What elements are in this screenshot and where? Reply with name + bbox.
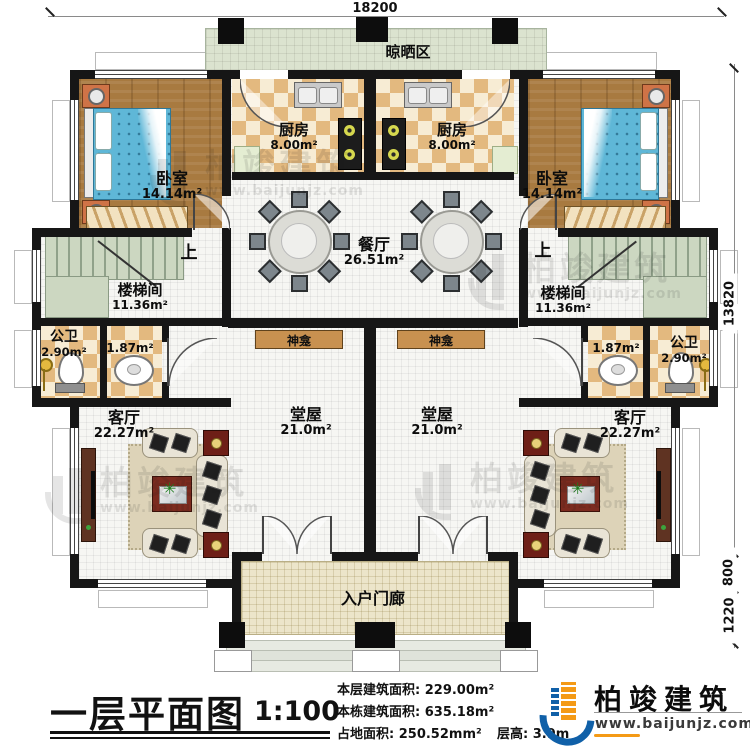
chair: [485, 233, 502, 250]
room-label-stair-left: 楼梯间11.36m²: [112, 282, 168, 312]
tv-cabinet: [656, 448, 671, 542]
stair-treads-left: [45, 233, 184, 280]
page-title: 一层平面图: [50, 684, 245, 738]
room-label-kitchen-left: 厨房8.00m²: [270, 122, 317, 152]
window: [98, 579, 206, 588]
table-top: [433, 223, 469, 259]
stair-landing-left: [45, 276, 109, 318]
room-label-living-right: 客厅22.27m²: [600, 409, 660, 441]
column-base: [352, 650, 400, 672]
door-opening: [462, 70, 510, 79]
sofa: [524, 455, 556, 537]
dining-table: [420, 210, 484, 274]
window-sill: [682, 100, 700, 202]
burner-icon: [388, 149, 399, 160]
mop-handle: [704, 369, 706, 391]
wall: [232, 552, 262, 561]
lamp-icon: [648, 88, 665, 105]
logo-accent-bar: [594, 734, 640, 737]
room-label-porch: 入户门廊: [341, 590, 405, 608]
dimension-right-upper: 13820: [723, 274, 738, 334]
porch-column: [219, 622, 245, 648]
bed-blanket: [584, 109, 612, 197]
bath-right-small-area: 1.87m²: [592, 342, 639, 355]
wall: [519, 318, 718, 326]
wall: [519, 398, 671, 407]
loveseat: [142, 528, 198, 558]
room-label-dining: 餐厅26.51m²: [344, 236, 404, 268]
logo-divider: [594, 712, 742, 713]
room-label-hall-left: 堂屋21.0m²: [280, 406, 331, 438]
cushion: [202, 509, 222, 529]
tv-cabinet: [81, 448, 96, 542]
column: [218, 18, 244, 44]
wall: [488, 552, 518, 561]
window: [709, 330, 718, 386]
kitchen-mat: [234, 146, 260, 174]
room-label-bath-right: 公卫2.90m²: [661, 336, 706, 365]
nightstand: [642, 84, 670, 108]
cushion: [561, 433, 581, 453]
info-building-area: 本栋建筑面积: 635.18m²: [337, 701, 494, 720]
window: [70, 100, 79, 200]
column-base: [214, 650, 252, 672]
wardrobe: [86, 206, 188, 230]
sink-basin: [408, 87, 427, 104]
logo-building-orange: [561, 682, 576, 720]
decor-icon: [661, 525, 666, 530]
door-arc: [420, 516, 453, 554]
window: [544, 579, 652, 588]
porch-column: [355, 622, 395, 648]
wardrobe: [564, 206, 666, 230]
dining-table: [268, 210, 332, 274]
window: [671, 100, 680, 200]
porch-column: [505, 622, 531, 648]
wall: [222, 70, 231, 196]
scale-label: 1:100: [254, 696, 340, 727]
shrine-shelf: 神龛: [255, 330, 343, 349]
stove: [382, 118, 406, 170]
loveseat: [554, 528, 610, 558]
toilet-tank: [55, 383, 85, 393]
tv-icon: [91, 471, 95, 519]
stove: [338, 118, 362, 170]
coffee-table: ✳: [560, 476, 600, 512]
bath-left-small-area: 1.87m²: [106, 342, 153, 355]
logo-building-blue: [551, 688, 559, 716]
door-arc: [264, 516, 297, 554]
side-table: [203, 430, 229, 456]
wall: [558, 228, 680, 237]
burner-icon: [344, 149, 355, 160]
sofa: [196, 455, 228, 537]
door-arc: [169, 338, 219, 388]
cushion: [530, 509, 550, 529]
wall: [79, 398, 231, 407]
wall: [376, 172, 514, 180]
plant-icon: ✳: [163, 481, 176, 497]
wall: [228, 318, 518, 328]
kitchen-mat: [492, 146, 518, 174]
window-sill: [14, 330, 32, 388]
burner-icon: [344, 125, 355, 136]
floor-plan: 神龛 神龛 ✳ ✳: [0, 0, 750, 749]
kitchen-sink: [294, 82, 342, 108]
window-sill: [95, 52, 212, 70]
column: [492, 18, 518, 44]
brand-website: www.baijunjz.com: [595, 716, 750, 732]
side-table: [203, 532, 229, 558]
sink-basin: [319, 87, 338, 104]
sink-basin: [298, 87, 317, 104]
door-arc: [453, 516, 486, 554]
window-sill: [540, 52, 657, 70]
window: [709, 250, 718, 302]
kitchen-sink: [404, 82, 452, 108]
cushion: [530, 485, 550, 505]
pillow: [95, 153, 112, 191]
pillow: [640, 112, 657, 150]
side-table: [523, 532, 549, 558]
toilet-tank: [665, 383, 695, 393]
shrine-label: 神龛: [398, 332, 484, 349]
room-label-bedroom-right: 卧室14.14m²: [522, 170, 582, 202]
basin-drain: [127, 364, 141, 375]
decor-icon: [211, 438, 222, 449]
cushion: [171, 534, 191, 554]
cushion: [149, 534, 169, 554]
window: [671, 428, 680, 554]
room-label-drying-area: 晾晒区: [385, 44, 430, 61]
room-label-bedroom-left: 卧室14.14m²: [142, 170, 202, 202]
chair: [443, 191, 460, 208]
table-top: [281, 223, 317, 259]
sink-basin: [429, 87, 448, 104]
title-underline: [50, 737, 330, 739]
chair: [249, 233, 266, 250]
shrine-label: 神龛: [256, 332, 342, 349]
washbasin-icon: [114, 355, 154, 386]
chair: [291, 191, 308, 208]
stair-up-left: 上: [181, 244, 198, 263]
info-floor-area: 本层建筑面积: 229.00m²: [337, 679, 494, 698]
window-sill: [52, 100, 70, 202]
wall: [232, 172, 364, 180]
room-label-stair-right: 楼梯间11.36m²: [535, 285, 591, 315]
stair-treads-right: [568, 233, 707, 280]
wall: [643, 326, 650, 398]
window: [543, 70, 655, 79]
door-leaf: [330, 516, 332, 554]
coffee-table: ✳: [152, 476, 192, 512]
cushion: [530, 461, 550, 481]
wall: [232, 561, 241, 628]
decor-icon: [211, 540, 222, 551]
door-arc: [531, 338, 581, 388]
window-sill: [98, 590, 208, 608]
dimension-line-top: [48, 16, 724, 17]
stair-landing-right: [643, 276, 707, 318]
wall: [100, 326, 107, 398]
cushion: [202, 461, 222, 481]
room-label-living-left: 客厅22.27m²: [94, 409, 154, 441]
room-label-kitchen-right: 厨房8.00m²: [428, 122, 475, 152]
door-opening: [240, 70, 288, 79]
door-arc: [240, 79, 288, 127]
lamp-icon: [88, 88, 105, 105]
column: [356, 16, 388, 42]
burner-icon: [388, 125, 399, 136]
cushion: [561, 534, 581, 554]
window: [32, 250, 41, 302]
window-sill: [14, 250, 32, 304]
decor-icon: [86, 525, 91, 530]
room-label-hall-right: 堂屋21.0m²: [411, 406, 462, 438]
cushion: [202, 485, 222, 505]
door-arc: [462, 79, 510, 127]
window-sill: [720, 330, 738, 388]
wall: [519, 228, 528, 327]
decor-icon: [531, 540, 542, 551]
washbasin-icon: [598, 355, 638, 386]
window: [32, 330, 41, 386]
door-leaf: [581, 338, 583, 386]
cushion: [583, 534, 603, 554]
window-sill: [544, 590, 654, 608]
wall: [364, 328, 376, 561]
info-land-area: 占地面积: 250.52mm²: [337, 723, 482, 742]
title-underline: [50, 731, 330, 734]
wall: [32, 318, 231, 326]
wall: [364, 70, 376, 180]
dimension-top: 18200: [330, 1, 420, 16]
door-leaf: [486, 516, 488, 554]
wall: [70, 228, 192, 237]
pillow: [640, 153, 657, 191]
side-table: [523, 430, 549, 456]
floor-drain-icon: [39, 358, 53, 372]
shrine-shelf: 神龛: [397, 330, 485, 349]
basin-drain: [611, 364, 625, 375]
window-sill: [52, 428, 70, 556]
cushion: [171, 433, 191, 453]
window: [95, 70, 207, 79]
brand-logo-icon: [538, 678, 588, 738]
wall: [222, 228, 231, 327]
mop-handle: [43, 369, 45, 391]
window: [70, 428, 79, 554]
stair-up-right: 上: [535, 242, 552, 261]
door-arc: [297, 516, 330, 554]
window-sill: [682, 428, 700, 556]
wall: [509, 561, 518, 628]
pillow: [95, 112, 112, 150]
chair: [443, 275, 460, 292]
plant-icon: ✳: [571, 481, 584, 497]
column-base: [500, 650, 538, 672]
nightstand: [82, 84, 110, 108]
chair: [291, 275, 308, 292]
decor-icon: [531, 438, 542, 449]
dimension-right-lower: 1220: [723, 588, 738, 644]
tv-icon: [657, 471, 661, 519]
room-label-bath-left: 公卫2.90m²: [41, 330, 86, 359]
